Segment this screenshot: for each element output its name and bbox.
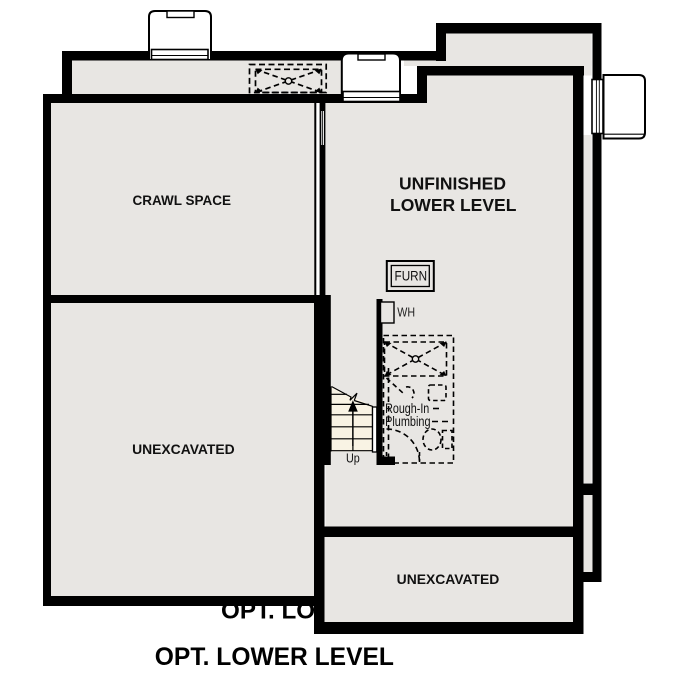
svg-text:UNEXCAVATED: UNEXCAVATED <box>132 441 235 457</box>
svg-text:FURN: FURN <box>395 268 428 284</box>
svg-text:WH: WH <box>397 304 415 319</box>
svg-text:CRAWL SPACE: CRAWL SPACE <box>133 193 232 208</box>
svg-text:UNFINISHED: UNFINISHED <box>399 174 506 194</box>
svg-text:Plumbing: Plumbing <box>385 414 430 429</box>
svg-text:OPT. LOWER LEVEL: OPT. LOWER LEVEL <box>155 644 394 671</box>
svg-text:Up: Up <box>346 452 360 466</box>
svg-text:LOWER LEVEL: LOWER LEVEL <box>390 195 517 215</box>
svg-text:UNEXCAVATED: UNEXCAVATED <box>397 571 500 587</box>
